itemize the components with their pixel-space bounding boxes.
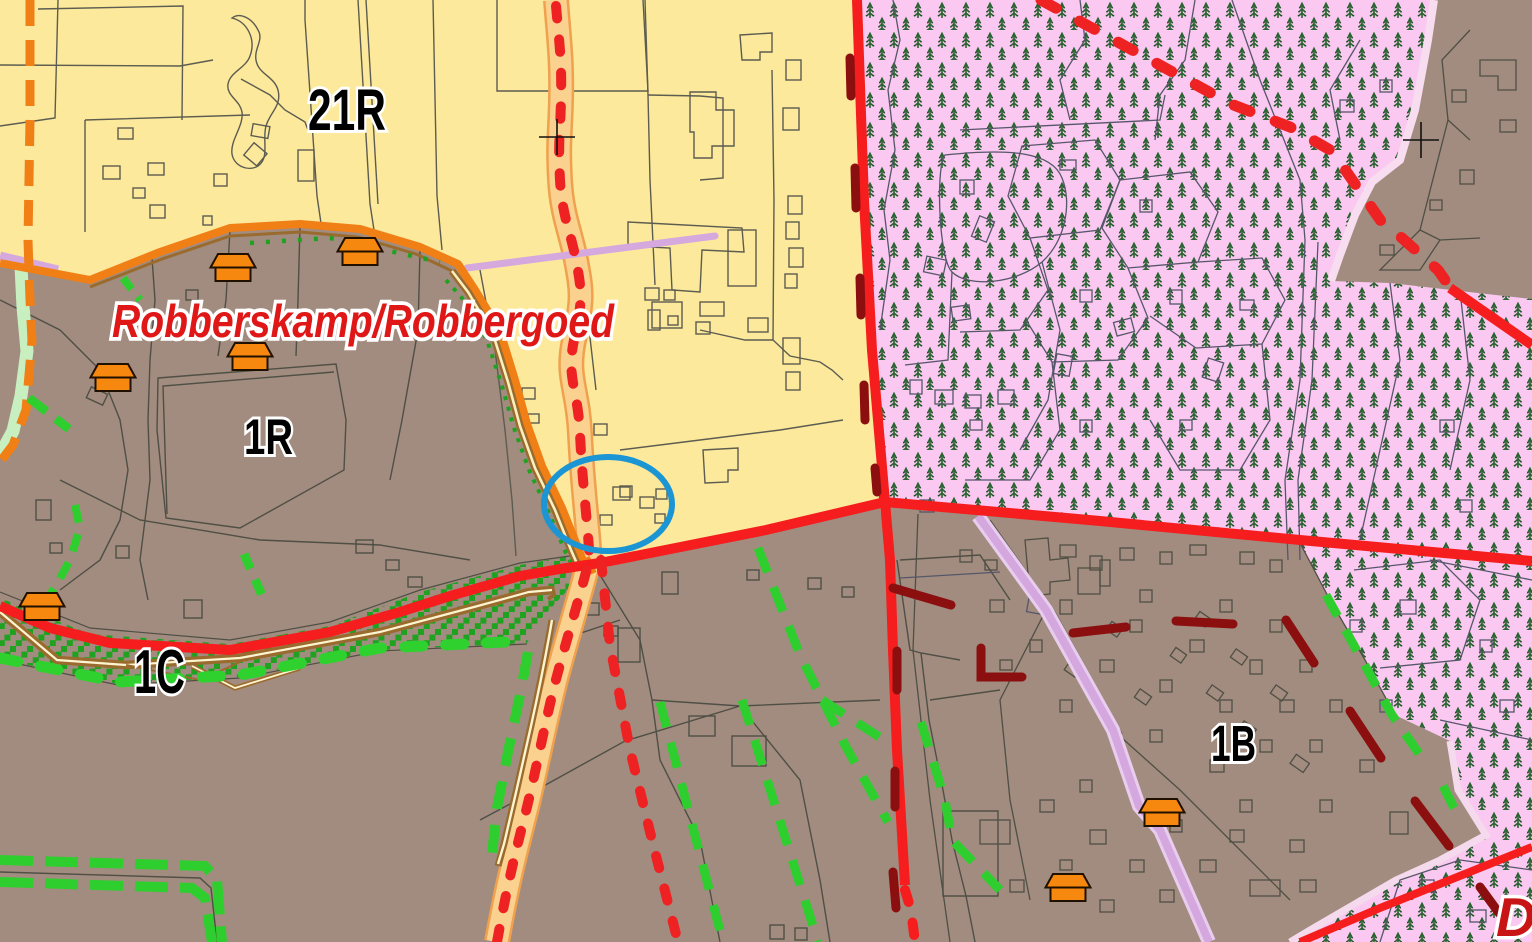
svg-text:1B: 1B — [1211, 715, 1256, 772]
svg-text:21R: 21R — [308, 78, 386, 143]
svg-text:D: D — [1496, 886, 1532, 942]
svg-text:1R: 1R — [244, 409, 293, 465]
svg-text:Robberskamp/Robbergoed: Robberskamp/Robbergoed — [112, 295, 615, 347]
svg-text:1C: 1C — [134, 638, 185, 707]
